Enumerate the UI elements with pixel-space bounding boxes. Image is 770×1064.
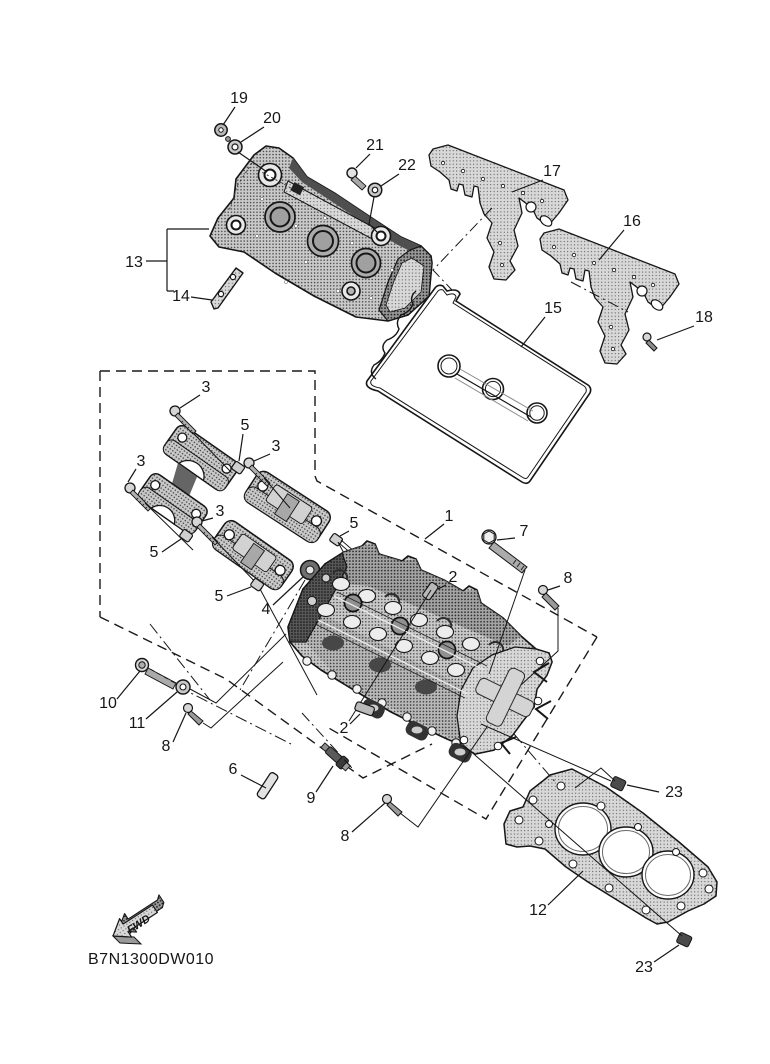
svg-text:2: 2: [449, 569, 458, 586]
svg-text:3: 3: [272, 438, 281, 455]
svg-text:5: 5: [241, 417, 250, 434]
svg-text:11: 11: [129, 715, 146, 732]
svg-text:21: 21: [366, 137, 384, 154]
svg-text:5: 5: [350, 515, 359, 532]
svg-text:15: 15: [544, 300, 562, 317]
svg-text:12: 12: [529, 902, 547, 919]
svg-text:20: 20: [263, 110, 281, 127]
svg-text:14: 14: [172, 288, 190, 305]
svg-text:3: 3: [216, 503, 225, 520]
svg-text:2: 2: [340, 720, 349, 737]
svg-text:B7N1300DW010: B7N1300DW010: [88, 951, 214, 968]
svg-text:5: 5: [150, 544, 159, 561]
svg-text:9: 9: [307, 790, 316, 807]
svg-text:18: 18: [695, 309, 713, 326]
svg-text:23: 23: [635, 959, 653, 976]
svg-text:8: 8: [341, 828, 350, 845]
svg-text:8: 8: [564, 570, 573, 587]
svg-text:16: 16: [623, 213, 641, 230]
svg-text:8: 8: [162, 738, 171, 755]
svg-text:1: 1: [445, 508, 454, 525]
svg-text:23: 23: [665, 784, 683, 801]
svg-text:17: 17: [543, 163, 561, 180]
svg-text:22: 22: [398, 157, 416, 174]
svg-text:19: 19: [230, 90, 248, 107]
svg-text:13: 13: [125, 254, 143, 271]
svg-text:10: 10: [99, 695, 117, 712]
svg-text:7: 7: [520, 523, 529, 540]
svg-text:3: 3: [202, 379, 211, 396]
svg-text:4: 4: [262, 601, 271, 618]
svg-text:6: 6: [229, 761, 238, 778]
svg-text:5: 5: [215, 588, 224, 605]
svg-text:3: 3: [137, 453, 146, 470]
